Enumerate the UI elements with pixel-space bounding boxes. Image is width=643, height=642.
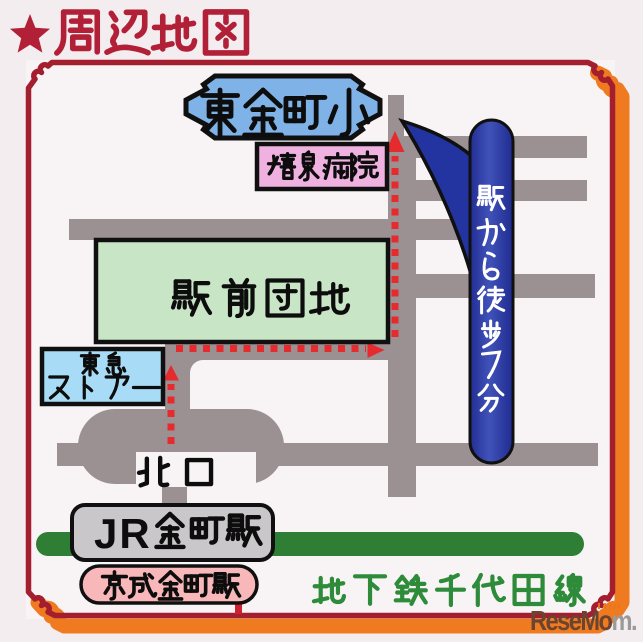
svg-text:JR: JR — [94, 510, 152, 557]
svg-text:ReseMom.: ReseMom. — [530, 605, 636, 636]
